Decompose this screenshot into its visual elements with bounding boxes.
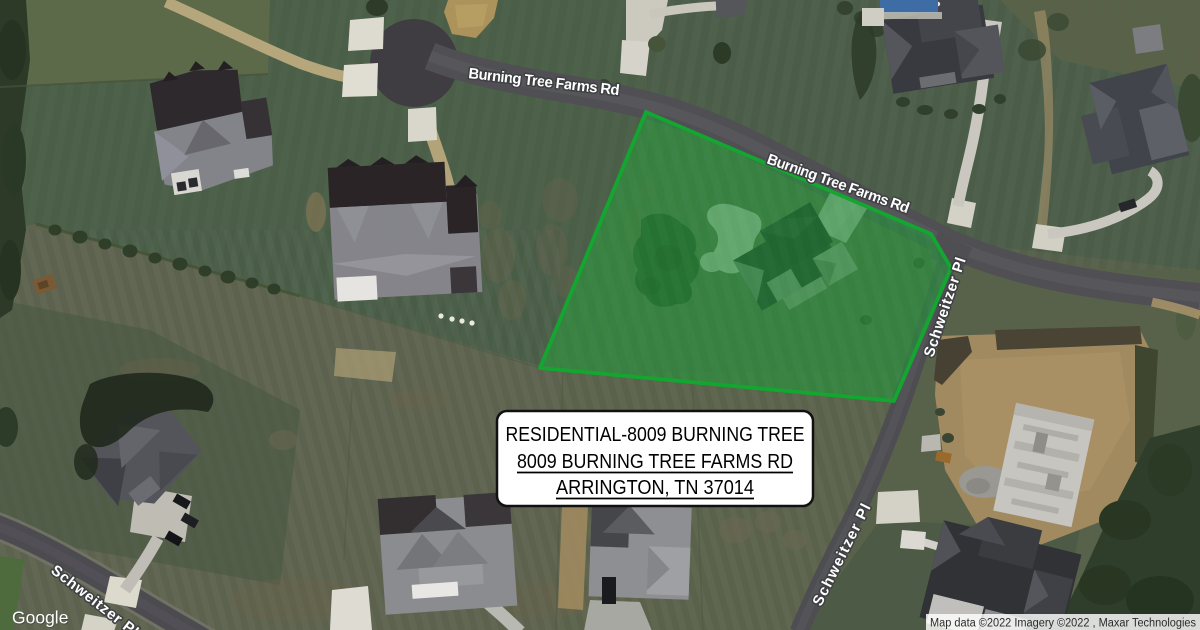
svg-text:8009 BURNING TREE FARMS RD: 8009 BURNING TREE FARMS RD [517,451,793,473]
svg-text:ARRINGTON, TN 37014: ARRINGTON, TN 37014 [556,477,754,499]
svg-text:Map data ©2022 Imagery ©2022 ,: Map data ©2022 Imagery ©2022 , Maxar Tec… [930,618,1196,630]
svg-text:Google: Google [12,608,68,628]
svg-text:RESIDENTIAL-8009 BURNING TREE: RESIDENTIAL-8009 BURNING TREE [506,424,805,446]
